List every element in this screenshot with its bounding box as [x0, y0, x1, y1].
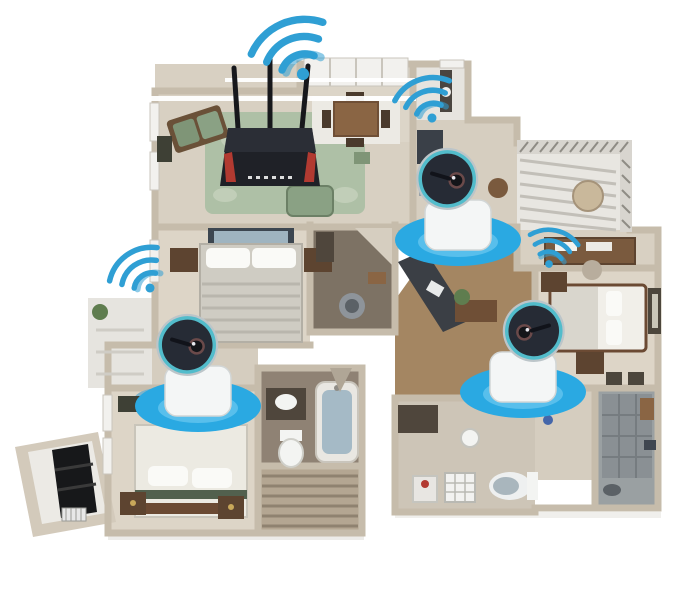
- window: [150, 103, 159, 141]
- railing-right: [620, 140, 632, 232]
- dining-table: [334, 102, 378, 136]
- toilet-bowl: [279, 439, 303, 467]
- plant: [454, 289, 470, 305]
- floorplan-illustration: [0, 0, 699, 589]
- stool: [354, 152, 370, 164]
- machine-knob: [421, 480, 429, 488]
- window: [103, 395, 112, 431]
- sink: [275, 394, 297, 410]
- bath-mat: [603, 484, 621, 496]
- pedestal-sink: [461, 429, 479, 447]
- lamp: [130, 500, 136, 506]
- washer-door: [345, 299, 359, 313]
- wall-art: [628, 372, 644, 385]
- armchair: [287, 186, 333, 216]
- wall-art: [157, 136, 172, 162]
- toilet-tank: [527, 472, 538, 500]
- patio-table: [573, 181, 603, 211]
- toiletry: [543, 415, 553, 425]
- nightstand: [576, 352, 604, 374]
- window: [440, 60, 464, 68]
- headboard-art-inner: [214, 231, 288, 243]
- shelf: [316, 232, 334, 262]
- nightstand: [170, 248, 198, 272]
- window: [103, 438, 112, 474]
- pillow: [606, 291, 622, 316]
- small-machine: [413, 476, 437, 502]
- seam-line: [225, 78, 415, 82]
- camera-lens-icon: [189, 338, 205, 354]
- router-top-face: [224, 128, 316, 152]
- wall-art: [606, 372, 622, 385]
- wall-art-inner: [652, 294, 658, 328]
- plant: [92, 304, 108, 320]
- washer-grid: [445, 473, 475, 502]
- pillow: [148, 466, 188, 486]
- camera-lens-icon: [516, 324, 532, 340]
- nightstand: [541, 272, 567, 292]
- lamp: [228, 504, 234, 510]
- wifi-arc-3: [245, 8, 323, 54]
- pillow: [192, 468, 232, 488]
- seam-line: [150, 96, 416, 101]
- shower-fixture: [644, 440, 656, 450]
- camera-lens-icon: [449, 172, 465, 188]
- cabinet: [368, 272, 386, 284]
- papers: [586, 242, 612, 251]
- floorplan-svg: [0, 0, 699, 589]
- bathtub-water: [322, 390, 352, 454]
- pillow: [606, 320, 622, 345]
- pillow: [252, 248, 296, 268]
- desk-chair: [582, 260, 602, 280]
- shower-shelf: [640, 398, 654, 420]
- vanity: [398, 405, 438, 433]
- bistro-table: [488, 178, 508, 198]
- toilet-seat: [493, 477, 519, 495]
- pillow: [206, 248, 250, 268]
